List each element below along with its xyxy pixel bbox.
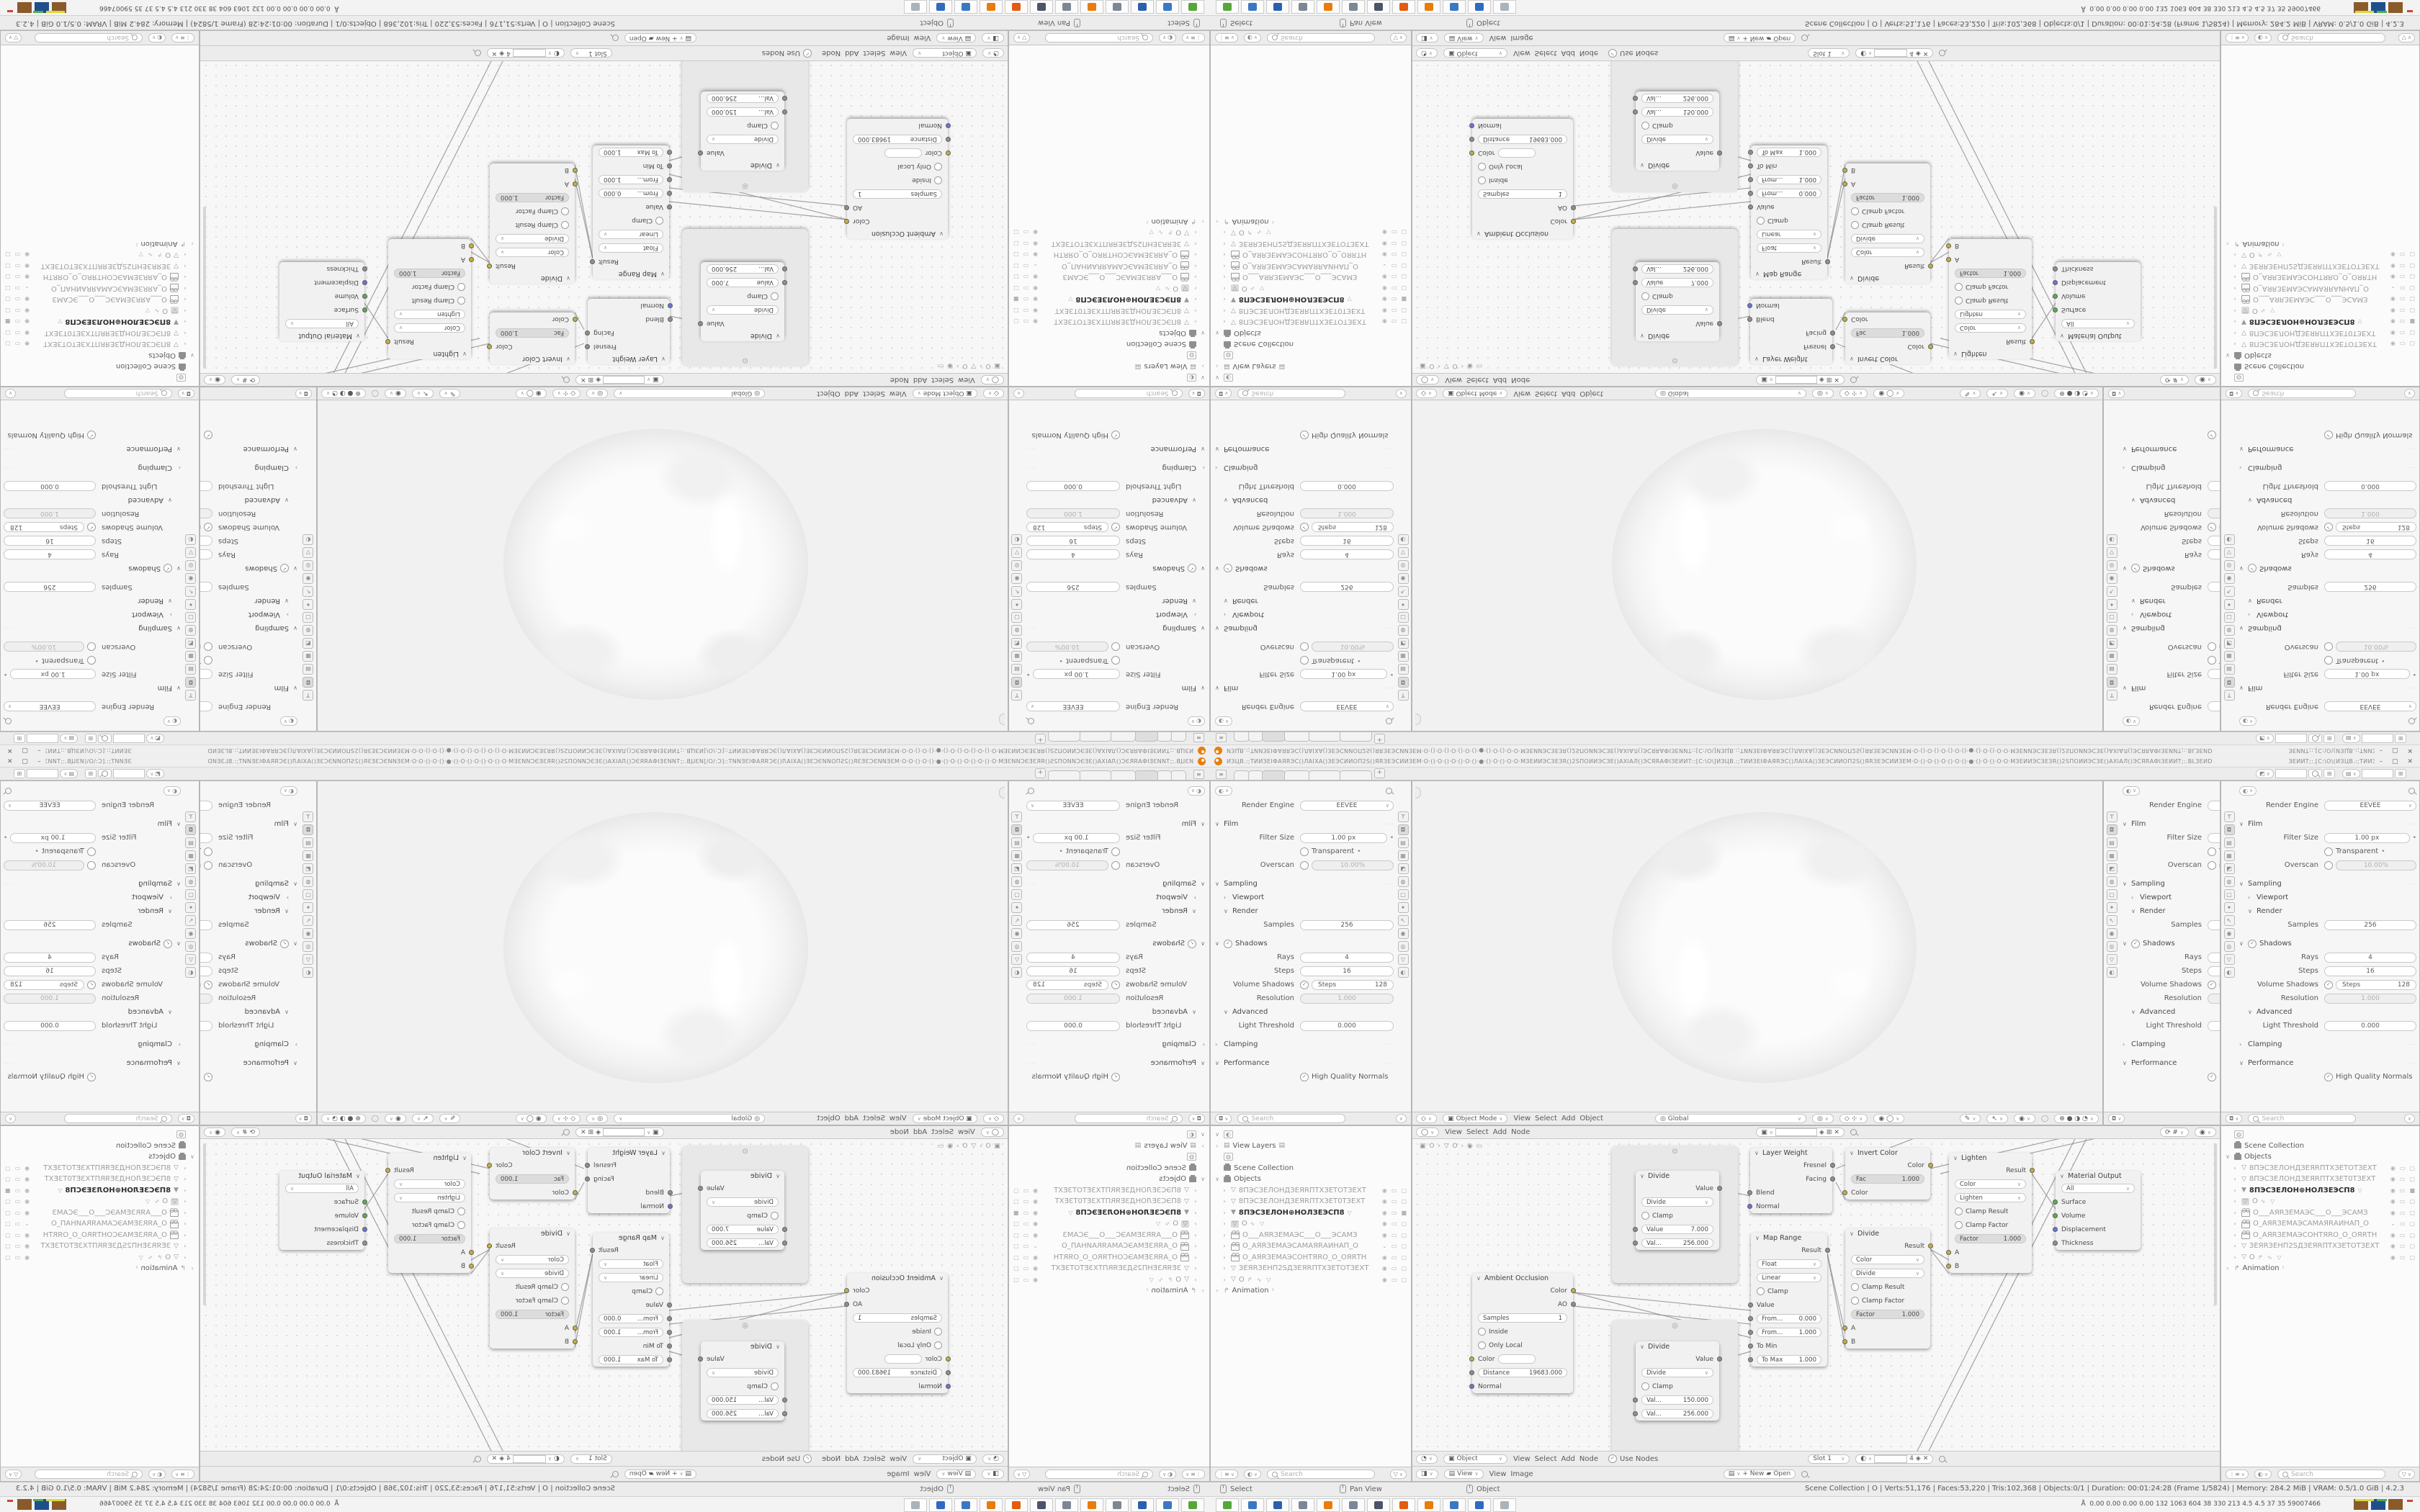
properties-section-clamping[interactable]: ›Clamping···· [1211, 461, 1397, 474]
pin-icon[interactable] [1028, 788, 1034, 794]
properties-section-shadows[interactable]: ∨✓Shadows [1, 937, 185, 950]
properties-tab-icon[interactable]: ϒ [2107, 690, 2117, 701]
use-nodes-checkbox[interactable]: ✓Use Nodes [1608, 49, 1658, 58]
outliner-object-row[interactable]: ›O_АЯRЗЕМАЭСОНТЯRО_О_ОЯRТН◉▭▢ [1211, 249, 1411, 261]
color-field[interactable] [1498, 1354, 1536, 1364]
fake-user-shield-icon[interactable]: ◈ [499, 50, 504, 57]
outliner-row-objects[interactable]: ∨Objects [1211, 328, 1411, 339]
screen-toggle-icon[interactable]: ▭ [1023, 1277, 1029, 1283]
outliner-object-row[interactable]: ›O___АЯRЗЕМАЭС___О___ЭСАМЗ◉▭▢ [2221, 294, 2419, 305]
outliner-object-row[interactable]: ›O___АЯRЗЕМАЭС___О___ЭСАМЗ◉▭▢ [1, 294, 199, 305]
properties-tab-icon[interactable]: ϒ [186, 690, 197, 701]
screen-toggle-icon[interactable]: ▭ [1023, 1210, 1029, 1216]
property-value-rays[interactable]: 4 [2324, 550, 2416, 560]
camera-toggle-icon[interactable]: ▢ [1013, 1254, 1019, 1261]
node-checkbox[interactable] [1641, 1382, 1649, 1390]
node-title[interactable]: ∨Map Range [1751, 269, 1827, 279]
menu-node[interactable]: Node [890, 376, 909, 384]
property-check-high-quality-normals[interactable]: ✓High Quality Normals [1023, 1070, 1209, 1084]
properties-section-render[interactable]: ∨Render [200, 904, 302, 918]
eye-icon[interactable]: ◉ [24, 1198, 30, 1205]
filter-icon[interactable]: ⋮≡∨ [1215, 1470, 1238, 1479]
display-mode-icon[interactable]: ◐∨ [148, 1470, 166, 1479]
tray-icon[interactable] [2388, 1499, 2403, 1510]
properties-section-film[interactable]: ∨Film···· [1023, 681, 1209, 695]
eye-icon[interactable]: ⌄ [2390, 285, 2396, 292]
camera-toggle-icon[interactable]: ▢ [2409, 296, 2415, 302]
fake-user-shield-icon[interactable]: ◈ [1819, 377, 1824, 384]
properties-tab-icon[interactable]: ◩ [186, 638, 197, 649]
node-value-field[interactable]: To Max1.000 [1757, 148, 1821, 157]
node-value-field[interactable]: Samples1 [1478, 1313, 1567, 1323]
menu-hamburger-icon[interactable]: ≡ [1216, 733, 1227, 742]
properties-section-shadows[interactable]: ∨✓Shadows [2235, 937, 2419, 950]
properties-tab-icon[interactable]: ◎ [1398, 560, 1409, 571]
properties-tab-icon[interactable]: ▽ [1012, 547, 1023, 558]
eye-icon[interactable]: ◉ [1033, 251, 1038, 258]
menu-select[interactable]: Select [1535, 1455, 1557, 1463]
node-enum-select[interactable]: All∨ [285, 319, 359, 328]
pin-icon[interactable] [1850, 377, 1857, 383]
properties-tab-icon[interactable]: ▦ [186, 850, 197, 861]
eye-icon[interactable]: ◉ [2390, 330, 2396, 336]
taskbar-app-icon[interactable] [1216, 0, 1239, 14]
properties-tab-icon[interactable]: ◍ [1398, 625, 1409, 636]
menu-image[interactable]: Image [887, 35, 909, 42]
taskbar-app-icon[interactable] [1417, 1498, 1440, 1512]
workspace-tab[interactable] [1157, 770, 1172, 780]
node-title[interactable]: ∨Map Range [1751, 1233, 1827, 1243]
material-name-field[interactable] [603, 376, 645, 384]
camera-toggle-icon[interactable]: ▢ [1013, 307, 1019, 314]
camera-toggle-icon[interactable]: ▢ [1013, 274, 1019, 280]
annotate-icon[interactable]: ✎∨ [439, 1114, 461, 1123]
properties-section-sampling[interactable]: ∨Sampling···· [200, 621, 302, 635]
fake-user-shield-icon[interactable]: ◈ [1916, 50, 1921, 57]
properties-tab-icon[interactable]: ◎ [2224, 941, 2235, 952]
screen-toggle-icon[interactable]: ▭ [2400, 251, 2406, 258]
property-value-resolution[interactable]: 1.000 [1300, 994, 1394, 1004]
node-value-field[interactable]: From...0.000 [1757, 1314, 1821, 1323]
outliner-row-objects[interactable]: ∨Objects [1009, 1174, 1209, 1185]
outliner-object-row[interactable]: ›▽O∿ ▽◉▭▢ [1009, 283, 1209, 294]
section-checkbox[interactable]: ✓ [2131, 564, 2140, 573]
outliner-object-row[interactable]: ›▽8ПЭСЗЕЛОНДЗЕЯRПТХЗЕТОТЗЕХТ◉▭▢ [1211, 1185, 1411, 1197]
property-value-light-threshold[interactable]: 0.000 [2208, 482, 2220, 492]
section-checkbox[interactable]: ✓ [1188, 940, 1196, 948]
shader-type-dropdown[interactable]: ▣ Object∨ [913, 1454, 977, 1464]
input-socket[interactable] [1747, 303, 1752, 308]
camera-toggle-icon[interactable]: ▢ [5, 1165, 11, 1171]
copy-icon[interactable]: ⊞ [2395, 769, 2407, 778]
eye-icon[interactable]: ◉ [24, 1254, 30, 1261]
slot-dropdown[interactable]: Slot 1∨ [570, 1454, 612, 1464]
input-socket[interactable] [362, 1200, 367, 1205]
toolbar-collapse-handle[interactable] [1415, 714, 1421, 725]
editor-type-icon[interactable]: ◐∨ [2123, 717, 2140, 726]
image-name-field[interactable] [2362, 734, 2393, 743]
properties-tab-icon[interactable]: ◐ [2224, 534, 2235, 545]
properties-tab-icon[interactable]: ◍ [2224, 876, 2235, 887]
node-lighten[interactable]: ∨LightenResultColor∨Lighten∨Clamp Result… [1949, 239, 2032, 359]
property-value-light-threshold[interactable]: 0.000 [1026, 1021, 1120, 1031]
taskbar-app-icon[interactable] [1005, 0, 1028, 14]
slot-dropdown[interactable]: Slot 1∨ [1808, 49, 1850, 58]
node-value-field[interactable]: From...1.000 [599, 1328, 663, 1337]
node-title[interactable]: ∨Divide [701, 1171, 784, 1182]
outliner-row-animation[interactable]: ›↱Animation² [2221, 1263, 2419, 1274]
section-checkbox[interactable]: ✓ [163, 564, 172, 573]
camera-toggle-icon[interactable]: ▢ [1401, 1254, 1407, 1261]
output-socket[interactable] [1571, 1288, 1576, 1293]
transform-orientation-dropdown[interactable]: ◎ Global∨ [614, 1114, 765, 1123]
checkbox[interactable] [87, 657, 96, 665]
camera-toggle-icon[interactable]: ▢ [1013, 1277, 1019, 1283]
display-mode-icon[interactable]: ◐∨ [2254, 1470, 2272, 1479]
screen-toggle-icon[interactable]: ▭ [15, 1254, 21, 1261]
node-title[interactable]: ∨Divide [1845, 1228, 1930, 1239]
input-socket[interactable] [469, 257, 474, 262]
eye-icon[interactable]: ◉ [2390, 296, 2396, 302]
input-socket[interactable] [1633, 1227, 1638, 1232]
properties-tab-icon[interactable]: ▽ [2224, 954, 2235, 965]
menu-view[interactable]: View [958, 1128, 975, 1136]
screen-toggle-icon[interactable]: ▭ [1023, 1198, 1029, 1205]
node-enum-select[interactable]: Float∨ [599, 1259, 663, 1269]
screen-toggle-icon[interactable]: ▭ [2400, 1165, 2406, 1171]
material-selector[interactable]: ◐∨ 4 ◈ ✕ [1855, 1454, 1933, 1464]
camera-toggle-icon[interactable]: ▢ [2409, 1165, 2415, 1171]
node-value-field[interactable]: Samples1 [853, 189, 942, 199]
node-invert-color[interactable]: ∨Invert ColorColorFac1.000Color [1845, 1148, 1930, 1200]
property-value-resolution[interactable]: 1.000 [1300, 509, 1394, 519]
maximize-button[interactable]: ▢ [22, 758, 29, 765]
screen-toggle-icon[interactable]: ▭ [15, 263, 21, 269]
input-socket[interactable] [573, 168, 578, 173]
filter-icon[interactable]: ⋮≡∨ [1182, 33, 1205, 42]
pin-icon[interactable] [1939, 50, 1945, 57]
taskbar-app-icon[interactable] [1131, 1498, 1154, 1512]
node-value-field[interactable]: Samples1 [853, 1313, 942, 1323]
outliner-object-row[interactable]: ›O_АЯRЗЕМАЭСОНТЯRО_О_ОЯRТН◉▭▢ [1211, 1252, 1411, 1264]
unlink-icon[interactable]: ✕ [492, 50, 498, 57]
search-input[interactable]: Search [1075, 1114, 1183, 1123]
editor-type-icon[interactable]: ◐∨ [1188, 786, 1205, 796]
node-enum-select[interactable]: Lighten∨ [394, 310, 465, 319]
property-check-high-quality-normals[interactable]: ✓High Quality Normals [1211, 428, 1397, 442]
properties-tab-icon[interactable]: ✦ [186, 902, 197, 913]
properties-tab-icon[interactable]: ϒ [1012, 811, 1023, 822]
xray-toggle-icon[interactable]: ◯ [2041, 1115, 2048, 1122]
input-socket[interactable] [668, 1190, 673, 1195]
editor-type-icon[interactable]: ◔∨ [1416, 49, 1438, 58]
property-value-filter-size[interactable]: 1.00 px [1033, 833, 1120, 843]
editor-type-icon[interactable]: ◯∨ [981, 1128, 1004, 1137]
funnel-filter-icon[interactable]: ▽∨ [1013, 1470, 1030, 1479]
camera-toggle-icon[interactable]: ▢ [1401, 1198, 1407, 1205]
taskbar-app-icon[interactable] [1367, 1498, 1390, 1512]
workspace-tab[interactable] [1340, 770, 1372, 780]
camera-toggle-icon[interactable]: ▢ [1013, 1265, 1019, 1272]
measure-icon[interactable]: ↖∨ [1986, 1114, 2008, 1123]
material-selector[interactable]: ▣∨ ◈ ⊞ ✕ [575, 1128, 664, 1137]
taskbar-app-icon[interactable] [1493, 0, 1516, 14]
outliner-object-row[interactable]: ›▼8ПЭСЗЕЛОН⊕НОЛЗЕЭСП8▽◉▭■ [1009, 294, 1209, 305]
property-value-filter-size[interactable]: 1.00 px [2208, 833, 2220, 843]
properties-tab-icon[interactable]: ◩ [1012, 638, 1023, 649]
property-value-overscan[interactable]: 10.00% [4, 860, 84, 870]
node-title[interactable]: ∨Material Output [279, 330, 364, 341]
properties-section-performance[interactable]: ∨Performance···· [200, 442, 302, 456]
workspace-tab[interactable] [1079, 770, 1111, 780]
checkbox[interactable]: ✓ [87, 431, 96, 440]
camera-toggle-icon[interactable]: ▢ [5, 1210, 11, 1216]
editor-type-icon[interactable]: ◘∨ [295, 1114, 312, 1123]
section-checkbox[interactable]: ✓ [1224, 564, 1232, 573]
workspace-tab[interactable] [1157, 732, 1172, 742]
menu-image[interactable]: Image [887, 1470, 909, 1478]
outliner-row-objects[interactable]: ∨Objects [2221, 1151, 2419, 1163]
menu-select[interactable]: Select [1535, 1115, 1557, 1122]
properties-tab-icon[interactable]: ◉ [2224, 573, 2235, 584]
screen-toggle-icon[interactable]: ▭ [1023, 1187, 1029, 1194]
workspace-tab[interactable] [1248, 770, 1263, 780]
node-enum-select[interactable]: Linear∨ [1757, 1273, 1821, 1282]
node-value-field[interactable]: Factor1.000 [1851, 193, 1924, 202]
screen-toggle-icon[interactable]: ▭ [2400, 1198, 2406, 1205]
eye-icon[interactable]: ◉ [1033, 1232, 1038, 1238]
properties-tab-icon[interactable]: ▢ [2224, 612, 2235, 623]
screen-toggle-icon[interactable]: ▭ [15, 318, 21, 325]
property-value-resolution[interactable]: 1.000 [4, 509, 96, 519]
editor-type-icon[interactable]: ◯∨ [981, 375, 1004, 384]
property-value-volume-shadows[interactable]: Steps128 [2336, 980, 2416, 990]
menu-image[interactable]: Image [1510, 35, 1533, 42]
object-mode-dropdown[interactable]: ▣ Object Mode∨ [1443, 1114, 1507, 1123]
editor-type-icon[interactable]: ◨∨ [982, 34, 1004, 43]
annotate-icon[interactable]: ✎∨ [1960, 389, 1981, 398]
view-object-types-icon[interactable]: ◉ ◯∨ [1873, 389, 1904, 398]
display-mode-icon[interactable]: ◐∨ [2254, 33, 2272, 42]
node-enum-select[interactable]: Float∨ [1757, 1259, 1821, 1269]
node-ambient-occlusion[interactable]: ∨Ambient OcclusionColorAOSamples1InsideO… [1472, 119, 1573, 239]
menu-add[interactable]: Add [1493, 376, 1507, 384]
output-socket[interactable] [1830, 344, 1835, 349]
node-checkbox[interactable] [561, 207, 569, 215]
property-value-volume-shadows[interactable]: Steps128 [200, 523, 201, 533]
node-lighten[interactable]: ∨LightenResultColor∨Lighten∨Clamp Result… [1949, 1153, 2032, 1273]
properties-tab-icon[interactable]: ▽ [2107, 954, 2117, 965]
properties-tab-icon[interactable]: ▢ [2107, 612, 2117, 623]
node-value-field[interactable]: Value7.000 [1641, 278, 1713, 287]
outliner-row-animation[interactable]: ›↱Animation² [1211, 1285, 1411, 1297]
node-enum-select[interactable]: Linear∨ [1757, 230, 1821, 239]
checkbox[interactable]: ✓ [2324, 431, 2333, 440]
input-socket[interactable] [946, 1370, 951, 1375]
node-value-field[interactable]: Distance19683.000 [1478, 135, 1567, 144]
workspace-tab[interactable] [1110, 770, 1136, 780]
node-divide[interactable]: ∨DivideResultColor∨Divide∨Clamp ResultCl… [1845, 163, 1930, 284]
outliner-row-objects[interactable]: ∨Objects [2221, 350, 2419, 361]
eye-icon[interactable]: ◉ [1382, 274, 1387, 280]
property-check-high-quality-normals[interactable]: ✓High Quality Normals [2118, 1070, 2220, 1084]
screen-toggle-icon[interactable]: ▭ [1023, 1243, 1029, 1249]
editor-type-icon[interactable]: ◐∨ [1215, 717, 1232, 726]
properties-tab-icon[interactable]: ✦ [1012, 902, 1023, 913]
properties-tab-icon[interactable]: ▢ [186, 889, 197, 900]
properties-section-sampling[interactable]: ∨Sampling···· [1, 621, 185, 635]
properties-section-sampling[interactable]: ∨Sampling···· [2118, 621, 2220, 635]
checkbox[interactable]: ✓ [2208, 431, 2216, 440]
screen-toggle-icon[interactable]: ▭ [2400, 318, 2406, 325]
image-browse-icon[interactable]: ▤∨ [60, 734, 78, 743]
taskbar-app-icon[interactable] [1342, 0, 1365, 14]
properties-section-film[interactable]: ∨Film···· [1, 817, 185, 831]
open-image-button[interactable]: ▰ Open [1766, 35, 1791, 42]
outliner-row-view-layers[interactable]: ›▤View Layers▤ [1009, 361, 1209, 372]
outliner-object-row[interactable]: ›▽O↱ ∿ ▽◉▭▢ [1211, 227, 1411, 238]
editor-type-icon[interactable]: ◘∨ [2108, 1114, 2125, 1123]
camera-toggle-icon[interactable]: ▢ [1013, 285, 1019, 292]
copy-icon[interactable]: ⊞ [2395, 734, 2407, 743]
camera-toggle-icon[interactable]: ▢ [5, 285, 11, 292]
menu-view[interactable]: View [1513, 1455, 1531, 1463]
material-selector[interactable]: ▣∨ ◈ ⊞ ✕ [575, 375, 664, 384]
add-workspace-button[interactable]: + [1374, 734, 1385, 744]
properties-tab-icon[interactable]: ◐ [1012, 967, 1023, 978]
material-name-field[interactable] [1874, 1455, 1907, 1463]
node-value-field[interactable]: Val...150.000 [707, 107, 779, 117]
viewport-3d[interactable]: ◇∨ ▣ Object Mode∨ ViewSelectAddObject ◎ … [1412, 780, 2103, 1125]
property-value-overscan[interactable]: 10.00% [4, 642, 84, 652]
screen-toggle-icon[interactable]: ▭ [2400, 285, 2406, 292]
menu-view[interactable]: View [1513, 390, 1531, 397]
pin-icon[interactable] [2408, 788, 2415, 794]
copy-icon[interactable]: ⊞ [2323, 769, 2336, 778]
funnel-filter-icon[interactable]: ▽∨ [1013, 33, 1030, 42]
node-title[interactable]: ∨Divide [1636, 1341, 1719, 1352]
property-value-samples[interactable]: 256 [1300, 920, 1394, 930]
search-input[interactable]: Search [1045, 1470, 1153, 1479]
menu-add[interactable]: Add [1493, 1128, 1507, 1136]
close-button[interactable]: ✕ [2407, 747, 2413, 755]
unlink-icon[interactable]: ✕ [581, 1129, 586, 1136]
menu-object[interactable]: Object [817, 1115, 841, 1122]
material-name-field[interactable] [1775, 376, 1817, 384]
properties-tab-icon[interactable]: ▦ [303, 850, 314, 861]
property-value-light-threshold[interactable]: 0.000 [2324, 482, 2416, 492]
screen-toggle-icon[interactable]: ▭ [2400, 1220, 2406, 1227]
shader-type-dropdown[interactable]: ▣ Object∨ [1443, 1454, 1507, 1464]
properties-tab-icon[interactable]: ◍ [2224, 625, 2235, 636]
node-enum-select[interactable]: Lighten∨ [1955, 310, 2026, 319]
input-socket[interactable] [946, 150, 951, 156]
checkbox[interactable] [2324, 847, 2333, 856]
pin-icon[interactable] [475, 1456, 481, 1462]
camera-toggle-icon[interactable]: ▢ [1401, 240, 1407, 247]
properties-tab-icon[interactable]: ϒ [303, 690, 314, 701]
properties-tab-icon[interactable]: ◩ [1012, 863, 1023, 874]
properties-section-viewport[interactable]: ›Viewport [200, 608, 302, 621]
property-value-rays[interactable]: 4 [1026, 953, 1120, 963]
menu-view[interactable]: View [1445, 376, 1462, 384]
display-mode-icon[interactable]: ◐∨ [148, 33, 166, 42]
outliner-object-row[interactable]: ›▽ЗЕЯRЗЕНП2SДЗЕЯRПТХЗЕТОТЗЕХТ◉▭▢ [1, 1241, 199, 1252]
screen-toggle-icon[interactable]: ▭ [1391, 1243, 1397, 1249]
property-value-resolution[interactable]: 1.000 [2208, 509, 2220, 519]
property-value-volume-shadows[interactable]: Steps128 [1312, 523, 1394, 533]
taskbar-app-icon[interactable] [904, 1498, 927, 1512]
property-value-light-threshold[interactable]: 0.000 [4, 1021, 96, 1031]
menu-add[interactable]: Add [845, 50, 859, 58]
properties-section-advanced[interactable]: ∨Advanced [1211, 493, 1397, 507]
workspace-tab[interactable] [1340, 732, 1372, 742]
chevron-down-icon[interactable]: ∨ [1396, 1114, 1407, 1123]
input-socket[interactable] [946, 1384, 951, 1389]
input-socket[interactable] [946, 1356, 951, 1362]
shader-node-editor[interactable]: ◯∨ ViewSelectAddNode ▣∨ ◈ ⊞ ✕ ⟳ #∨ ◉∨ ▣ … [1412, 1125, 2220, 1482]
property-check-transparent[interactable]: Transparent• [1023, 845, 1209, 858]
open-image-button[interactable]: ▰ Open [629, 1470, 654, 1477]
camera-toggle-icon[interactable]: ▢ [1401, 307, 1407, 314]
snap-grid-icon[interactable]: ⟳ #∨ [231, 1128, 260, 1137]
output-socket[interactable] [1928, 1243, 1933, 1248]
view-object-types-icon[interactable]: ◉ ◯∨ [516, 1114, 547, 1123]
overlays-icon[interactable]: ◉∨ [2014, 389, 2035, 398]
outliner-object-row[interactable]: ›O___АЯRЗЕМАЭС___О___ЭСАМЗ◉▭▢ [1009, 1230, 1209, 1241]
workspace-tab[interactable] [1309, 732, 1341, 742]
node-enum-select[interactable]: Color∨ [394, 323, 465, 333]
search-input[interactable]: Search [2248, 389, 2356, 398]
menu-select[interactable]: Select [863, 390, 885, 397]
menu-select[interactable]: Select [1535, 50, 1557, 58]
output-socket[interactable] [1830, 1176, 1835, 1182]
properties-tab-icon[interactable]: ◉ [1012, 573, 1023, 584]
properties-section-performance[interactable]: ∨Performance···· [1211, 1056, 1397, 1070]
node-checkbox[interactable] [1955, 1221, 1963, 1229]
input-socket[interactable] [1946, 1250, 1951, 1255]
node-map-range[interactable]: ∨Map RangeResultFloat∨Linear∨ClampValueF… [593, 145, 669, 279]
outliner-object-row[interactable]: ›▽O∿ ▽◉▭▢ [1211, 283, 1411, 294]
checkbox[interactable] [87, 847, 96, 856]
screen-toggle-icon[interactable]: ▭ [2400, 330, 2406, 336]
taskbar-app-icon[interactable] [1392, 1498, 1415, 1512]
screen-toggle-icon[interactable]: ▭ [1391, 251, 1397, 258]
camera-toggle-icon[interactable]: ▢ [1401, 263, 1407, 269]
menu-object[interactable]: Object [817, 390, 841, 397]
workspace-tab[interactable] [1262, 770, 1286, 780]
node-invert-color[interactable]: ∨Invert ColorColorFac1.000Color [490, 1148, 575, 1200]
editor-type-icon[interactable]: ◘∨ [2108, 389, 2125, 398]
properties-tab-icon[interactable]: ✦ [186, 599, 197, 610]
menu-hamburger-icon[interactable]: ≡ [1216, 770, 1227, 779]
properties-section-sampling[interactable]: ∨Sampling···· [200, 877, 302, 891]
eye-icon[interactable]: ◉ [1382, 307, 1387, 314]
use-nodes-checkbox[interactable]: ✓Use Nodes [762, 1454, 812, 1463]
screen-toggle-icon[interactable]: ▭ [1023, 1220, 1029, 1227]
property-value-samples[interactable]: 256 [200, 582, 212, 593]
properties-section-shadows[interactable]: ∨✓Shadows [200, 937, 302, 950]
input-socket[interactable] [1842, 1190, 1847, 1195]
outliner-row-scene-collection[interactable]: Scene Collection [1009, 1163, 1209, 1174]
material-users-count[interactable]: 4 [506, 50, 511, 57]
image-new-open-group[interactable]: ▤∨ + New ▰ Open [624, 1470, 697, 1479]
menu-view[interactable]: View [1513, 50, 1531, 58]
properties-tab-icon[interactable]: ◐ [1398, 534, 1409, 545]
properties-section-advanced[interactable]: ∨Advanced [200, 1005, 302, 1019]
mode-switch-icon[interactable]: ◇∨ [983, 1114, 1004, 1123]
section-checkbox[interactable]: ✓ [280, 940, 289, 948]
